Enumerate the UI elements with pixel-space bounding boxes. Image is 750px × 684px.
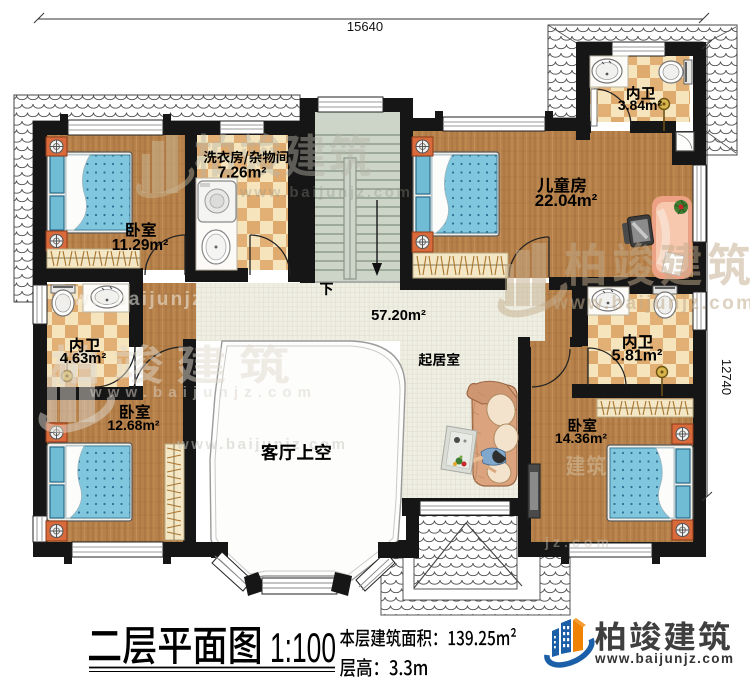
- svg-text:15640: 15640: [347, 19, 383, 34]
- svg-text:1:100: 1:100: [270, 624, 336, 671]
- svg-text:14.36m²: 14.36m²: [555, 430, 607, 446]
- svg-text:22.04m²: 22.04m²: [535, 191, 598, 210]
- svg-text:www.baijunjz.com: www.baijunjz.com: [56, 289, 257, 310]
- svg-text:5.81m²: 5.81m²: [612, 348, 663, 365]
- svg-text:12740: 12740: [719, 359, 734, 395]
- svg-text:57.20m²: 57.20m²: [371, 308, 426, 324]
- svg-text:4.63m²: 4.63m²: [60, 351, 107, 367]
- svg-text:11.29m²: 11.29m²: [112, 237, 168, 254]
- svg-text:www.baijunjz.com: www.baijunjz.com: [594, 651, 733, 666]
- svg-text:7.26m²: 7.26m²: [218, 165, 267, 182]
- svg-text:jz.com: jz.com: [544, 534, 609, 550]
- svg-text:3.84m²: 3.84m²: [618, 97, 663, 113]
- svg-text:12.68m²: 12.68m²: [107, 417, 159, 433]
